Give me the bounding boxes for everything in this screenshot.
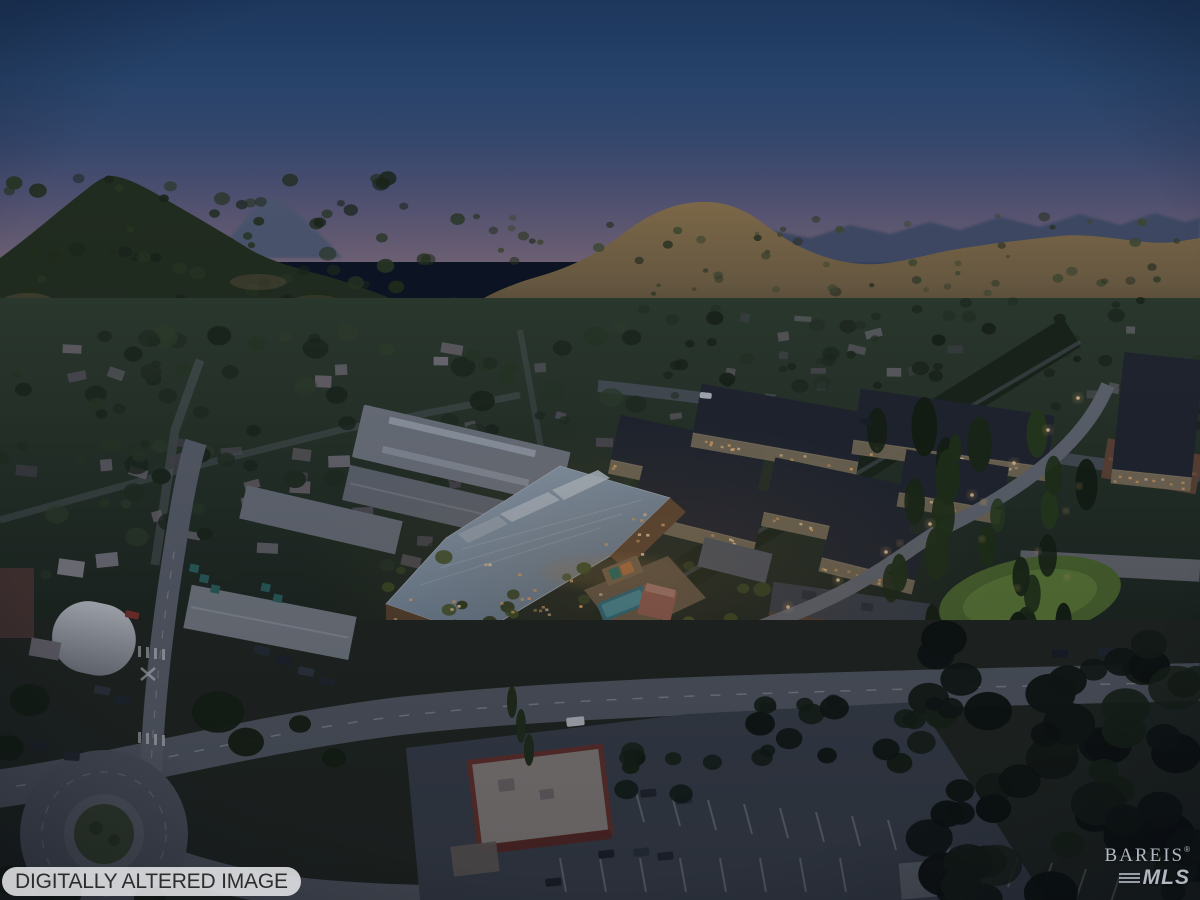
- aerial-photo: [0, 0, 1200, 900]
- mls-lines-icon: [1119, 873, 1140, 883]
- listing-photo: DIGITALLY ALTERED IMAGE BAREIS® MLS: [0, 0, 1200, 900]
- dusk-overlay: [0, 0, 1200, 900]
- registered-trademark-icon: ®: [1184, 845, 1190, 854]
- digitally-altered-badge: DIGITALLY ALTERED IMAGE: [2, 867, 301, 896]
- watermark-brand: BAREIS®: [1105, 845, 1190, 866]
- watermark-suffix: MLS: [1143, 867, 1190, 888]
- bareis-mls-watermark: BAREIS® MLS: [1105, 845, 1190, 888]
